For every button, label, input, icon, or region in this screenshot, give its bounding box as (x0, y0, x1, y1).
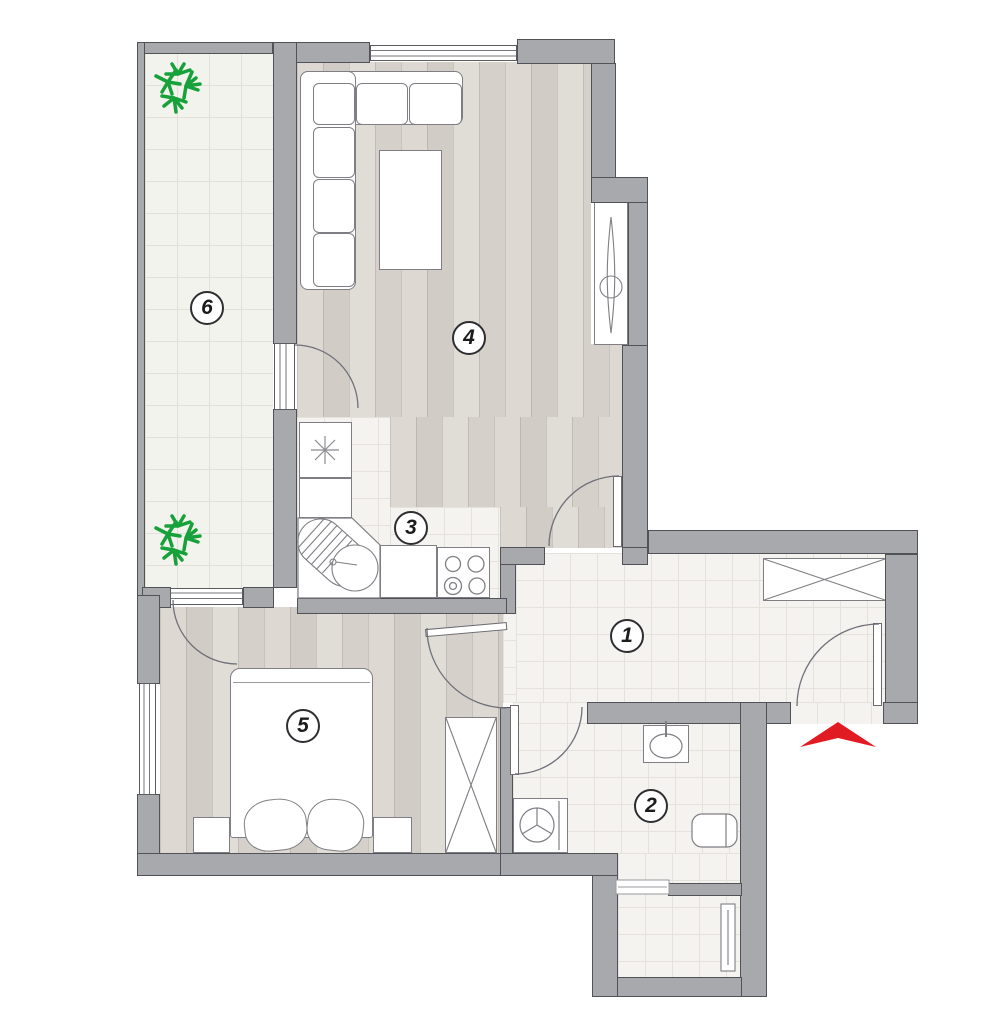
toilet-icon (692, 814, 737, 847)
radiator-icon (600, 217, 735, 971)
door-arc (173, 600, 237, 664)
door-arc (295, 345, 358, 408)
door-arc (515, 707, 582, 774)
washing-machine-icon (520, 801, 559, 850)
partition-screen (616, 880, 669, 894)
plant-icon (156, 64, 200, 112)
fridge-snowflake-icon (311, 436, 339, 464)
window-mullions (144, 51, 516, 795)
symbols-overlay (0, 0, 996, 1024)
room-badge-4: 4 (452, 321, 486, 355)
kitchen-sink-counter (288, 509, 380, 598)
room-badge-2: 2 (634, 789, 668, 823)
door-arc (427, 628, 507, 708)
room-badge-5: 5 (286, 709, 320, 743)
floor-plan: 1 2 3 4 5 6 (0, 0, 996, 1024)
plant-icon (156, 516, 200, 564)
entrance-arrow (800, 722, 876, 747)
bathroom-sink-icon (650, 721, 682, 758)
room-badge-6: 6 (190, 291, 224, 325)
door-arc (797, 624, 879, 706)
room-badge-1: 1 (610, 619, 644, 653)
stove-burners-icon (445, 556, 486, 595)
door-swing-arcs (173, 345, 879, 774)
door-arc (549, 476, 619, 546)
room-badge-3: 3 (394, 511, 428, 545)
